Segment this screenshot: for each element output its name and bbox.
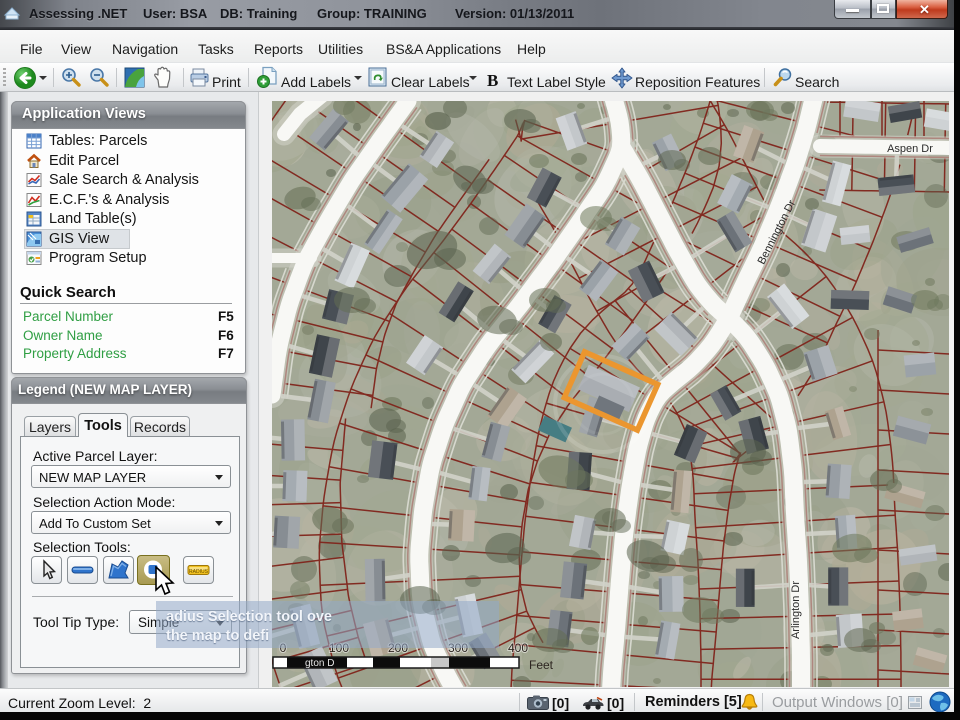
svg-text:gton D: gton D [305,658,334,669]
svg-text:Feet: Feet [529,658,554,672]
svg-text:400: 400 [508,641,528,655]
svg-text:RADIUS: RADIUS [189,569,209,575]
svg-text:Arlington Dr: Arlington Dr [790,581,802,639]
svg-text:Aspen Dr: Aspen Dr [887,143,933,155]
